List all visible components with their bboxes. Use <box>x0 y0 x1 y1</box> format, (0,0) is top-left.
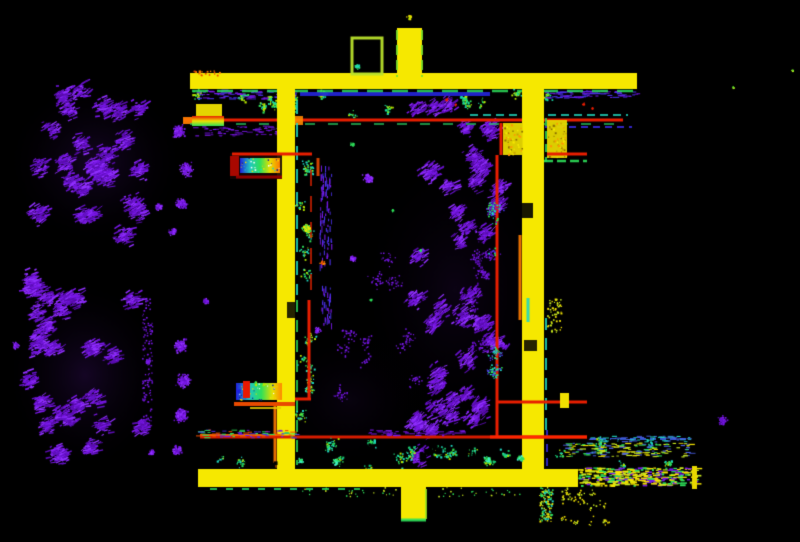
lidar-pointcloud-viewport <box>0 0 800 542</box>
point-cloud-canvas <box>0 0 800 542</box>
